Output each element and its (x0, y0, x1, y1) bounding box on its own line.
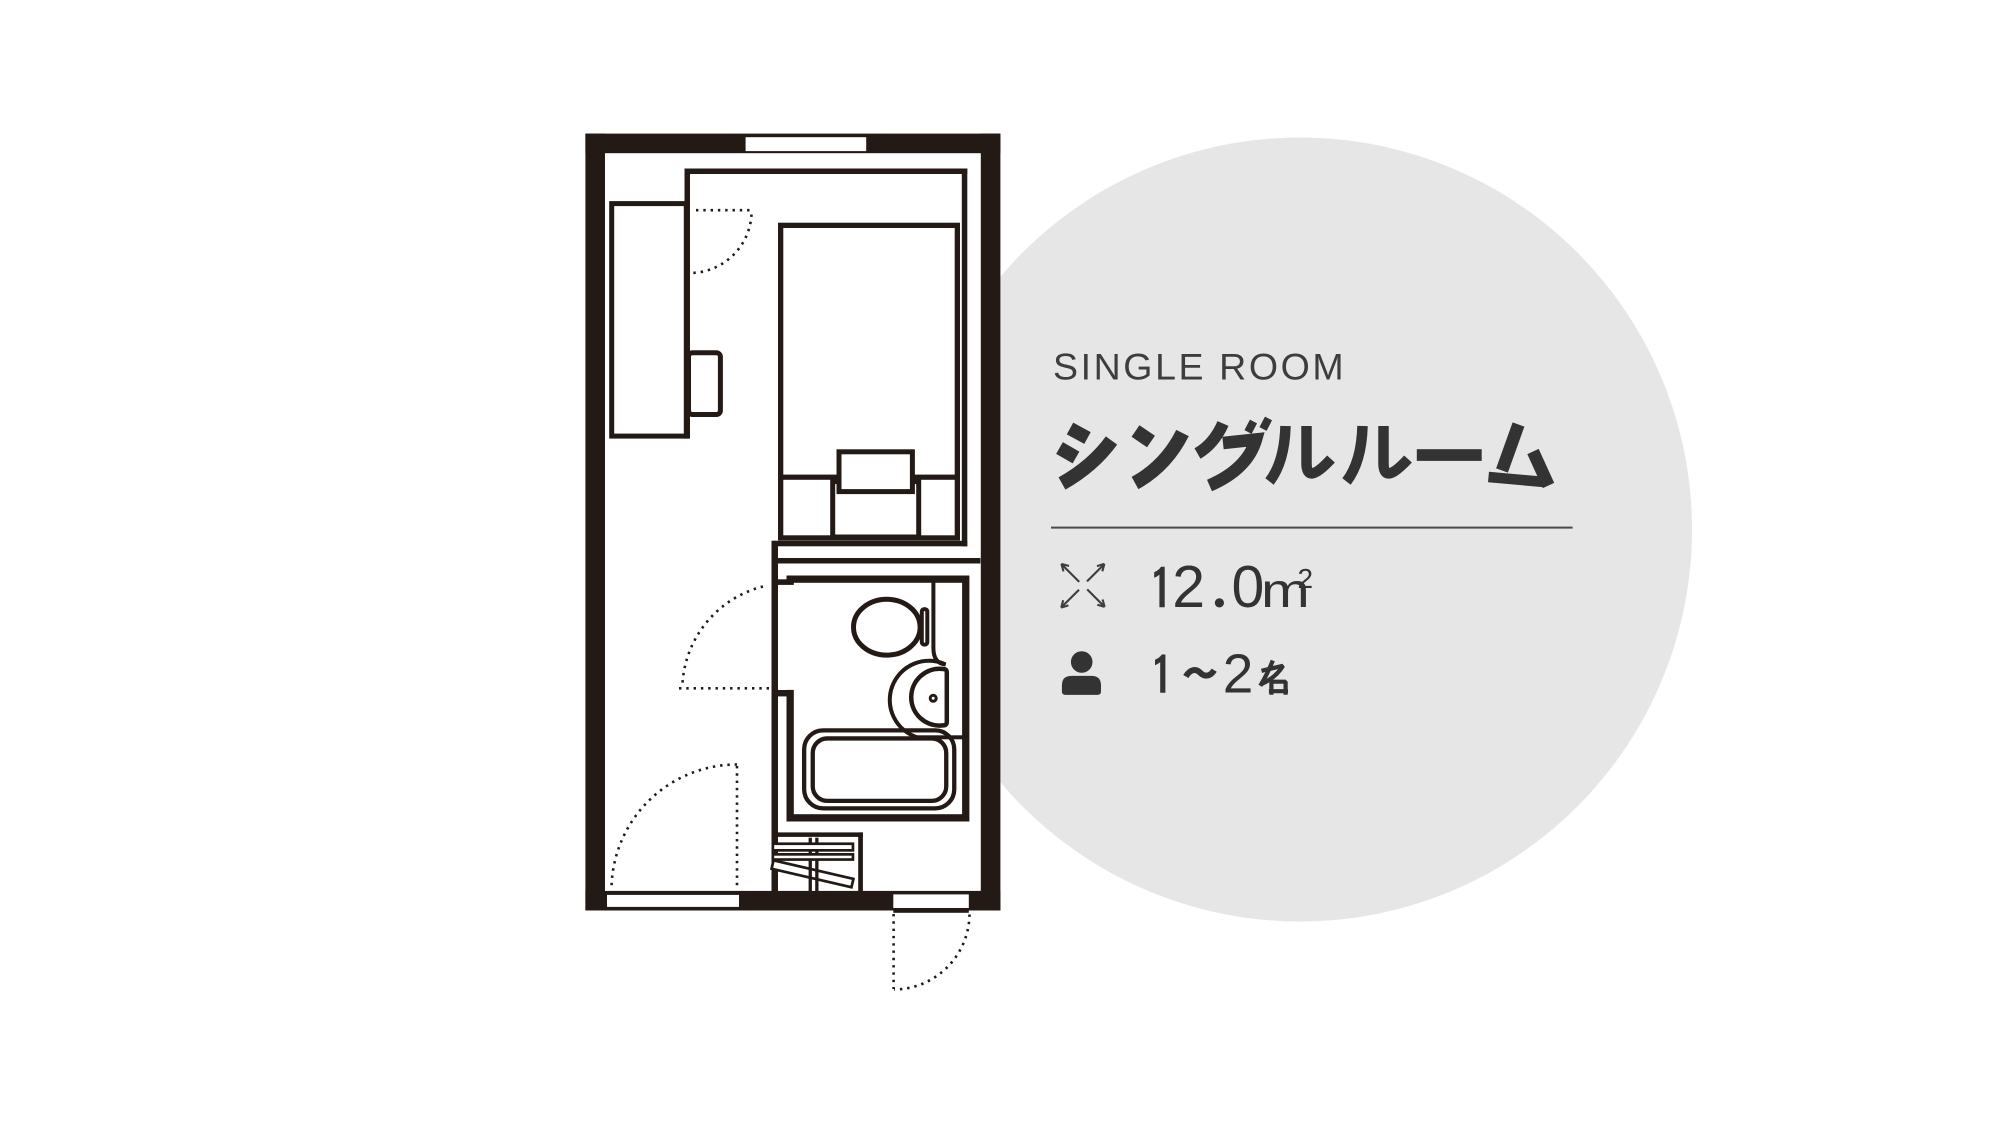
svg-text:SINGLE ROOM: SINGLE ROOM (1053, 346, 1346, 388)
svg-text:0: 0 (1232, 554, 1265, 620)
svg-text:2: 2 (1298, 563, 1314, 594)
svg-text:2: 2 (1223, 643, 1254, 705)
svg-text:2: 2 (1172, 554, 1205, 620)
